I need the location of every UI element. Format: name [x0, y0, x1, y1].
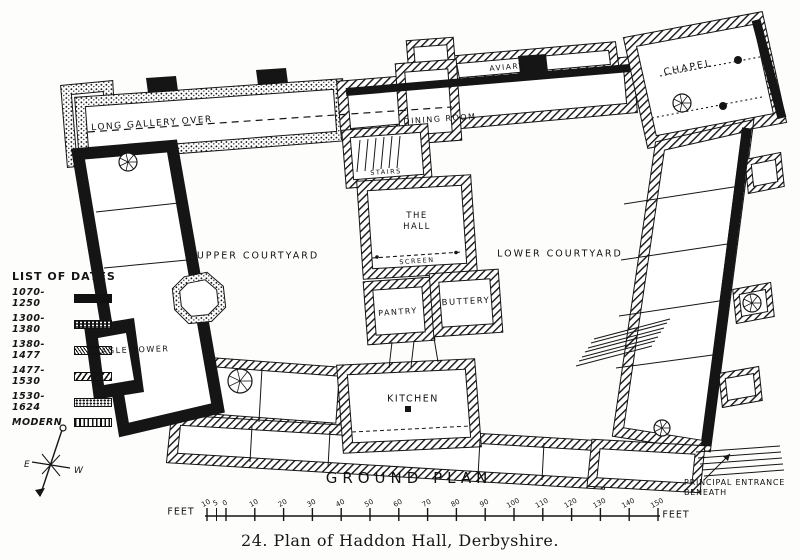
scale-tick-label: 100 — [505, 497, 521, 510]
legend-list-of-dates: LIST OF DATES 1070-1250 1300-1380 1380-1… — [12, 270, 124, 428]
scale-bar-ticks: 1050102030405060708090100110120130140150 — [200, 497, 665, 521]
scale-tick-label: 80 — [450, 498, 462, 509]
kitchen-hearth-mark — [405, 406, 411, 412]
compass-rose: E W — [24, 425, 84, 497]
spiral-stair-southeast — [654, 420, 670, 436]
scale-unit-right: FEET — [662, 510, 689, 521]
compass-arrowhead — [35, 488, 45, 497]
scale-tick-label: 70 — [421, 498, 433, 509]
scale-tick-label: 50 — [363, 498, 375, 509]
scale-tick-label: 130 — [592, 497, 608, 510]
north-turret-2 — [256, 68, 288, 85]
spiral-stair-northwest — [119, 153, 137, 171]
chapel-pillar-1 — [734, 56, 742, 64]
figure-plate: E W 105010203040506070809010011012013014… — [0, 0, 800, 560]
scale-tick-label: 30 — [306, 498, 318, 509]
figure-caption: 24. Plan of Haddon Hall, Derbyshire. — [0, 531, 800, 550]
spiral-stair-east — [743, 294, 761, 312]
label-upper-courtyard: UPPER COURTYARD — [197, 251, 319, 262]
spiral-stair-chapel — [673, 94, 691, 112]
compass-west-label: W — [74, 466, 84, 476]
scale-tick-label: 10 — [248, 498, 260, 509]
spiral-stair-round-tower — [228, 369, 252, 393]
label-principal-entrance-line1: PRINCIPAL ENTRANCE — [684, 478, 785, 488]
scale-tick-label: 60 — [392, 498, 404, 509]
scale-tick-label: 20 — [277, 498, 289, 509]
legend-row: 1300-1380 — [12, 313, 124, 335]
legend-row: 1477-1530 — [12, 365, 124, 387]
legend-swatch-fine-hatch-icon — [74, 346, 112, 355]
legend-swatch-solid-black-icon — [74, 294, 112, 303]
legend-swatch-vertical-lines-icon — [74, 418, 112, 427]
legend-label-1477-1530: 1477-1530 — [12, 365, 67, 387]
scale-tick-label: 110 — [534, 497, 550, 510]
legend-row: MODERN — [12, 417, 124, 428]
scale-tick-label: 0 — [221, 499, 229, 508]
legend-label-1380-1477: 1380-1477 — [12, 339, 67, 361]
legend-row: 1530-1624 — [12, 391, 124, 413]
legend-swatch-diagonal-lines-icon — [74, 372, 112, 381]
hall-block-walls — [346, 128, 498, 340]
screen-dot-right — [454, 251, 458, 255]
legend-row: 1380-1477 — [12, 339, 124, 361]
label-lower-courtyard: LOWER COURTYARD — [497, 249, 623, 260]
label-the-hall-line1: THE — [403, 211, 431, 222]
legend-label-1530-1624: 1530-1624 — [12, 391, 67, 413]
legend-swatch-stipple-icon — [74, 398, 112, 407]
chapel-pillar-2 — [719, 102, 727, 110]
compass-east-label: E — [24, 460, 30, 470]
label-principal-entrance: PRINCIPAL ENTRANCE BENEATH — [684, 478, 785, 498]
label-the-hall: THE HALL — [403, 211, 431, 233]
label-principal-entrance-line2: BENEATH — [684, 488, 785, 498]
legend-swatch-black-speckled-icon — [74, 320, 112, 329]
plan-title: GROUND PLAN — [326, 469, 493, 487]
legend-label-1070-1250: 1070-1250 — [12, 287, 67, 309]
scale-tick-label: 40 — [334, 498, 346, 509]
scale-tick-label: 150 — [649, 497, 665, 510]
label-the-hall-line2: HALL — [403, 222, 431, 233]
scale-tick-label: 10 — [200, 498, 212, 509]
screen-dot-left — [375, 255, 379, 259]
label-kitchen: KITCHEN — [387, 394, 439, 405]
scale-tick-label: 120 — [563, 497, 579, 510]
legend-label-modern: MODERN — [12, 417, 67, 428]
scale-tick-label: 5 — [212, 499, 220, 508]
legend-row: 1070-1250 — [12, 287, 124, 309]
legend-title: LIST OF DATES — [12, 270, 124, 283]
scale-unit-left: FEET — [167, 507, 194, 518]
label-stairs: STAIRS — [370, 167, 402, 177]
north-turret-1 — [146, 76, 178, 93]
east-range-walls — [618, 126, 781, 446]
scale-tick-label: 140 — [620, 497, 636, 510]
scale-tick-label: 90 — [478, 498, 490, 509]
legend-label-1300-1380: 1300-1380 — [12, 313, 67, 335]
scale-bar: 1050102030405060708090100110120130140150 — [200, 497, 665, 521]
